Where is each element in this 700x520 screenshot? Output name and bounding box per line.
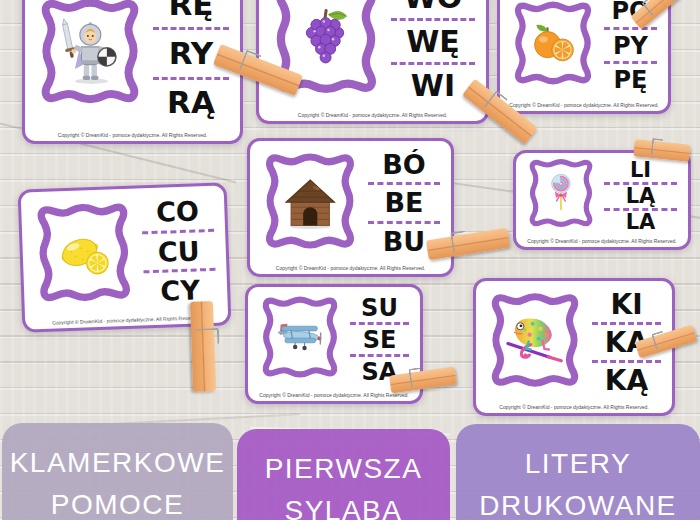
dashed-separator [604, 61, 657, 64]
syllable-option: WĘ [389, 22, 477, 61]
syllable-option: BÓ [366, 148, 442, 181]
chameleon-icon [503, 308, 566, 371]
syllable-option: PY [602, 31, 659, 61]
dashed-separator [350, 354, 409, 357]
syllable-option: KI [590, 288, 663, 321]
syllable-column: CO CU CY [135, 185, 229, 325]
doghouse-image-frame [258, 149, 362, 253]
syllable-option: WI [389, 66, 477, 105]
tab-label-line1: PIERWSZA [265, 455, 423, 483]
tab-pierwsza-sylaba[interactable]: PIERWSZA SYLABA [237, 429, 450, 520]
tab-label-line2: SYLABA [285, 497, 403, 520]
syllable-option: CU [140, 232, 217, 269]
knight-image-frame [33, 0, 147, 108]
card-knight: RĘ RY RĄ Copyright © DreamKid - pomoce d… [22, 0, 243, 144]
syllable-option: BE [366, 186, 442, 219]
knight-icon [55, 16, 126, 87]
biplane-icon [273, 310, 328, 365]
syllable-column: WO WĘ WI [385, 0, 486, 121]
syllable-option: LA [602, 212, 679, 233]
syllable-column: LI LĄ LA [598, 153, 688, 247]
tab-label-line1: KLAMERKOWE [10, 449, 226, 477]
dashed-separator [350, 322, 409, 325]
chameleon-image-frame [484, 289, 586, 391]
card-doghouse: BÓ BE BU Copyright © DreamKid - pomoce d… [247, 138, 454, 277]
tab-label-line1: LITERY [525, 450, 632, 478]
dashed-separator [368, 182, 440, 185]
syllable-option: RĘ [151, 0, 231, 26]
syllable-column: RĘ RY RĄ [147, 0, 240, 141]
doghouse-icon [278, 168, 342, 232]
biplane-image-frame [256, 293, 344, 381]
dashed-separator [153, 77, 229, 80]
syllable-option: SU [348, 294, 411, 321]
tab-klamerkowe-pomoce[interactable]: KLAMERKOWE POMOCE [2, 423, 233, 520]
copyright-text: Copyright © DreamKid - pomoce dydaktyczn… [25, 132, 240, 138]
orange-icon [525, 15, 581, 71]
clothespin-icon [190, 301, 216, 392]
dashed-separator [592, 322, 661, 325]
copyright-text: Copyright © DreamKid - pomoce dydaktyczn… [476, 404, 672, 410]
poster: RĘ RY RĄ Copyright © DreamKid - pomoce d… [0, 0, 700, 520]
card-grapes: WO WĘ WI Copyright © DreamKid - pomoce d… [256, 0, 489, 124]
syllable-option: LĄ [602, 186, 679, 207]
syllable-option: LI [602, 160, 679, 181]
lemon-icon [50, 218, 118, 286]
tab-label-line2: POMOCE [51, 491, 184, 519]
dashed-separator [592, 360, 661, 363]
lemon-image-frame [29, 197, 139, 307]
dashed-separator [391, 62, 475, 65]
syllable-option: CO [139, 193, 216, 230]
syllable-option: RĄ [151, 81, 231, 125]
syllable-option: SE [348, 326, 411, 353]
orange-image-frame [508, 0, 598, 88]
dashed-separator [368, 221, 440, 224]
card-lollipop: LI LĄ LA Copyright © DreamKid - pomoce d… [513, 150, 691, 250]
copyright-text: Copyright © DreamKid - pomoce dydaktyczn… [500, 102, 668, 108]
grapes-icon [289, 2, 362, 75]
lollipop-icon [538, 170, 584, 216]
syllable-option: KĄ [590, 364, 663, 397]
syllable-option: WO [389, 0, 477, 17]
dashed-separator [153, 27, 229, 30]
tab-litery-drukowane[interactable]: LITERY DRUKOWANE [456, 424, 700, 520]
lollipop-image-frame [524, 156, 598, 230]
syllable-option: PĘ [602, 65, 659, 95]
copyright-text: Copyright © DreamKid - pomoce dydaktyczn… [259, 112, 486, 118]
copyright-text: Copyright © DreamKid - pomoce dydaktyczn… [250, 265, 451, 271]
dashed-separator [391, 18, 475, 21]
tab-label-line2: DRUKOWANE [479, 492, 677, 520]
dashed-separator [604, 27, 657, 30]
copyright-text: Copyright © DreamKid - pomoce dydaktyczn… [516, 238, 688, 244]
